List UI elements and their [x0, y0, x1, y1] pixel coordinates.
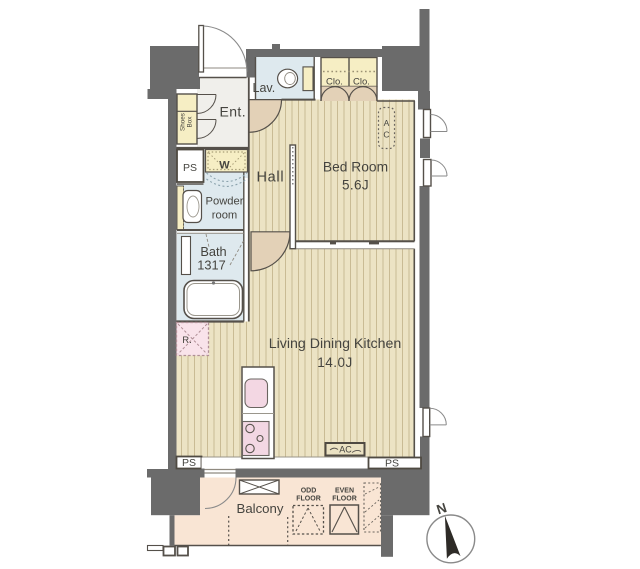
- svg-text:C: C: [383, 130, 389, 140]
- svg-text:PS: PS: [183, 162, 197, 174]
- svg-text:PS: PS: [385, 458, 399, 470]
- svg-text:Hall: Hall: [257, 170, 285, 186]
- svg-text:Lav.: Lav.: [253, 81, 276, 95]
- svg-text:Ent.: Ent.: [220, 104, 247, 120]
- svg-text:14.0J: 14.0J: [317, 355, 353, 370]
- svg-text:FLOOR: FLOOR: [332, 496, 357, 503]
- svg-text:Bed Room: Bed Room: [323, 160, 388, 175]
- svg-text:A: A: [384, 118, 390, 128]
- svg-text:R.: R.: [182, 335, 192, 346]
- svg-text:5.6J: 5.6J: [342, 178, 369, 193]
- svg-text:1317: 1317: [197, 258, 225, 273]
- svg-text:Clo.: Clo.: [353, 77, 370, 88]
- svg-text:Clo.: Clo.: [326, 77, 343, 88]
- svg-text:Balcony: Balcony: [237, 501, 284, 516]
- svg-text:room: room: [212, 210, 238, 222]
- svg-text:AC: AC: [339, 445, 352, 455]
- svg-text:ODD: ODD: [301, 488, 317, 495]
- svg-text:Powder: Powder: [206, 196, 244, 208]
- svg-text:Box: Box: [187, 116, 194, 128]
- svg-text:Living Dining Kitchen: Living Dining Kitchen: [269, 336, 402, 352]
- svg-text:FLOOR: FLOOR: [296, 496, 321, 503]
- svg-text:EVEN: EVEN: [335, 488, 354, 495]
- svg-text:PS: PS: [182, 457, 196, 469]
- svg-text:Shoes: Shoes: [180, 113, 187, 131]
- svg-text:W: W: [219, 160, 230, 172]
